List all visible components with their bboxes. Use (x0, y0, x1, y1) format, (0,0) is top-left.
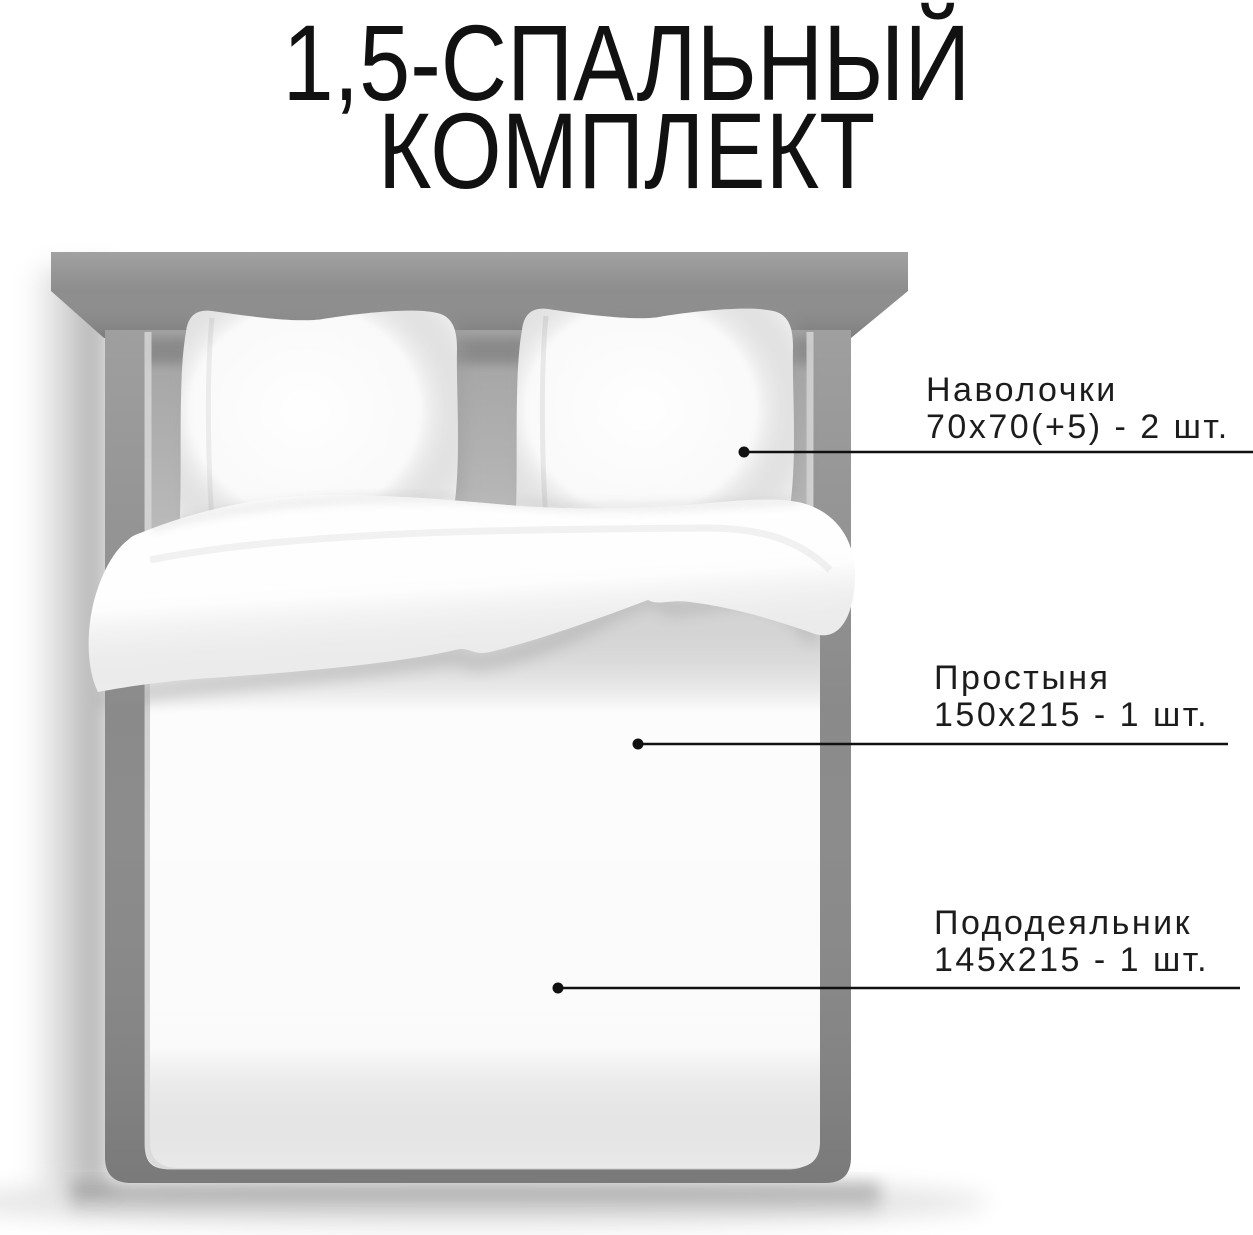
page-title: 1,5-СПАЛЬНЫЙ КОМПЛЕКТ (94, 19, 1159, 195)
title-line-2: КОМПЛЕКТ (94, 107, 1159, 195)
pointer-dot-sheet (633, 739, 644, 750)
bed-shadow-left (28, 268, 108, 1186)
pointer-dot-pillowcases (739, 447, 750, 458)
callout-pillowcases: Наволочки 70х70(+5) - 2 шт. (926, 372, 1230, 446)
callout-pillowcases-label: Наволочки (926, 372, 1230, 409)
callout-pillowcases-size: 70х70(+5) - 2 шт. (926, 409, 1230, 446)
callout-sheet: Простыня 150х215 - 1 шт. (934, 660, 1209, 734)
callout-sheet-label: Простыня (934, 660, 1209, 697)
callout-duvet-cover-label: Пододеяльник (934, 905, 1209, 942)
callout-duvet-cover-size: 145х215 - 1 шт. (934, 942, 1209, 979)
callout-duvet-cover: Пододеяльник 145х215 - 1 шт. (934, 905, 1209, 979)
bedding-set-infographic: 1,5-СПАЛЬНЫЙ КОМПЛЕКТ Наволочки 70х70(+5… (0, 0, 1253, 1235)
pointer-dot-duvet-cover (553, 983, 564, 994)
callout-sheet-size: 150х215 - 1 шт. (934, 697, 1209, 734)
